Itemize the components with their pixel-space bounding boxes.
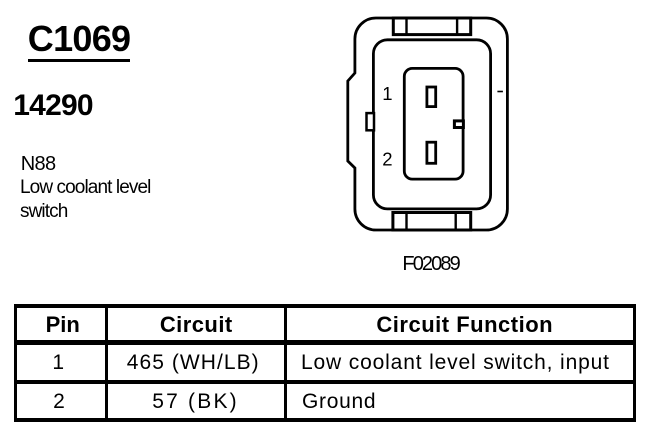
svg-text:2: 2 [382,149,392,170]
svg-text:1: 1 [382,83,392,104]
